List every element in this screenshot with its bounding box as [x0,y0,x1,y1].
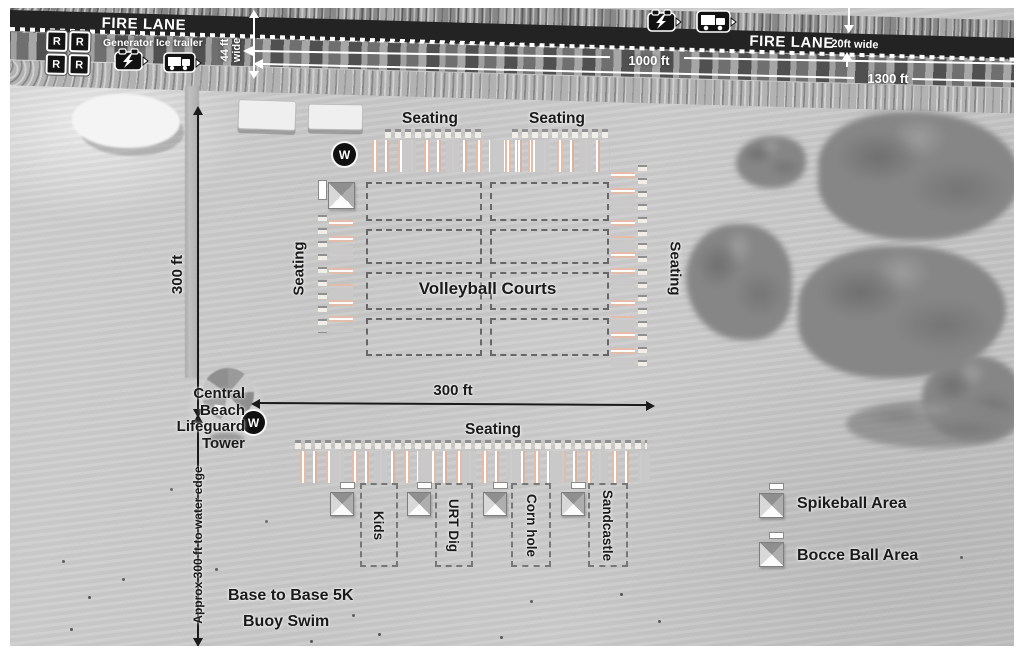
lifeguard-line: Beach [200,402,245,419]
restroom-icon: R [46,30,68,52]
lifeguard-line: Lifeguard [177,418,245,435]
seating-tables [300,451,650,483]
lifeguard-tower-label: Central Beach Lifeguard Tower [130,386,245,452]
lane-width-line2: wide [231,38,243,62]
restroom-icon: R [69,31,91,53]
seating-tables [505,140,610,172]
seating-label-bottom: Seating [443,421,543,439]
vegetation-patch [846,400,1014,448]
ice-trailer-label: Ice trailer [156,37,203,49]
dim-arrow-20ft [846,59,848,67]
sign-marker [769,483,784,490]
lane-width-line1: 44 ft [219,39,231,62]
ice-trailer-icon [162,50,206,76]
seating-label-left: Seating [291,241,308,295]
buoy-swim-label: Buoy Swim [243,613,329,631]
kids-area-label: Kids [371,510,386,539]
volleyball-court [490,229,609,264]
sandcastle-area-icon [561,492,585,516]
arrowhead-icon [193,106,203,115]
volleyball-courts-grid [366,182,609,356]
sign-marker [571,482,586,489]
dim-arrow-20ft [848,8,850,25]
vegetation-patch [736,136,806,188]
volleyball-court [490,182,609,221]
base-to-base-label: Base to Base 5K [228,587,353,605]
arrowhead-icon [844,25,854,33]
bocce-ball-area-icon [759,542,784,567]
dim-1000ft-label: 1000 ft [616,53,682,68]
arrowhead-icon [249,71,259,79]
ice-trailer-icon [695,8,739,36]
restroom-icon: R [45,53,67,75]
lane-width-label: 44 ft wide [219,27,243,73]
lifeguard-line: Central [193,385,245,402]
aerial-photo-map: FIRE LANE FIRE LANE 20ft wide 1000 ft 13… [10,8,1014,646]
seating-tables [329,220,353,332]
spikeball-area-icon [759,493,784,518]
building [308,104,363,131]
building [237,99,296,131]
sign-marker [493,482,508,489]
dim-300ft-horizontal-label: 300 ft [408,382,498,399]
lifeguard-line: Tower [202,435,245,452]
bocce-ball-area-label: Bocce Ball Area [797,547,918,565]
volleyball-court [490,318,609,356]
seating-tables [611,172,635,367]
dim-line-300ft-vertical [197,112,199,412]
corn-hole-area-icon [483,492,507,516]
dim-arrow-44ft [253,16,255,73]
kids-area: Kids [360,483,398,567]
seating-chairs [318,215,327,333]
urt-dig-area-label: URT Dig [447,498,462,551]
sign-marker [340,482,355,489]
arrowhead-icon [249,10,259,18]
arrowhead-icon [251,399,260,409]
volleyball-court [366,318,482,356]
restroom-icon: R [68,54,90,76]
urt-dig-area-icon [407,492,431,516]
dim-300ft-vertical-label: 300 ft [169,255,186,294]
arrowhead-icon [243,46,253,56]
sign-marker [769,532,784,539]
water-edge-note: Approx 300 ft to water edge [191,460,205,630]
vegetation-patch [818,112,1014,240]
sandcastle-area: Sandcastle [588,483,628,567]
urt-dig-area: URT Dig [435,483,473,567]
spikeball-area-label: Spikeball Area [797,495,907,513]
seating-chairs [295,440,647,449]
seating-chairs [638,165,647,370]
sandcastle-area-label: Sandcastle [601,489,616,560]
white-tent [72,94,180,148]
volleyball-court [366,182,482,221]
sign-marker [417,482,432,489]
water-station-icon: W [242,411,265,434]
seating-label-top-left: Seating [380,110,480,128]
water-station-icon: W [333,143,356,166]
generator-icon [113,48,153,74]
fire-lane-width-note: 20ft wide [831,38,878,51]
kids-area-icon [330,492,354,516]
generator-icon [646,9,686,35]
seating-chairs [512,129,610,138]
corn-hole-area: Corn hole [511,483,551,567]
site-map-page: FIRE LANE FIRE LANE 20ft wide 1000 ft 13… [0,0,1024,656]
restrooms-group: R R R R [45,30,90,75]
arrowhead-icon [842,52,852,60]
volleyball-court [366,229,482,264]
sign-marker [318,180,327,200]
arrowhead-icon [646,401,655,411]
canopy-icon [328,182,355,209]
seating-label-right: Seating [667,241,684,295]
volleyball-courts-label: Volleyball Courts [366,279,609,299]
seating-chairs [385,129,485,138]
corn-hole-area-label: Corn hole [524,494,539,557]
seating-label-top-right: Seating [507,110,607,128]
dim-1300ft-label: 1300 ft [860,71,916,86]
arrowhead-icon [193,638,203,646]
